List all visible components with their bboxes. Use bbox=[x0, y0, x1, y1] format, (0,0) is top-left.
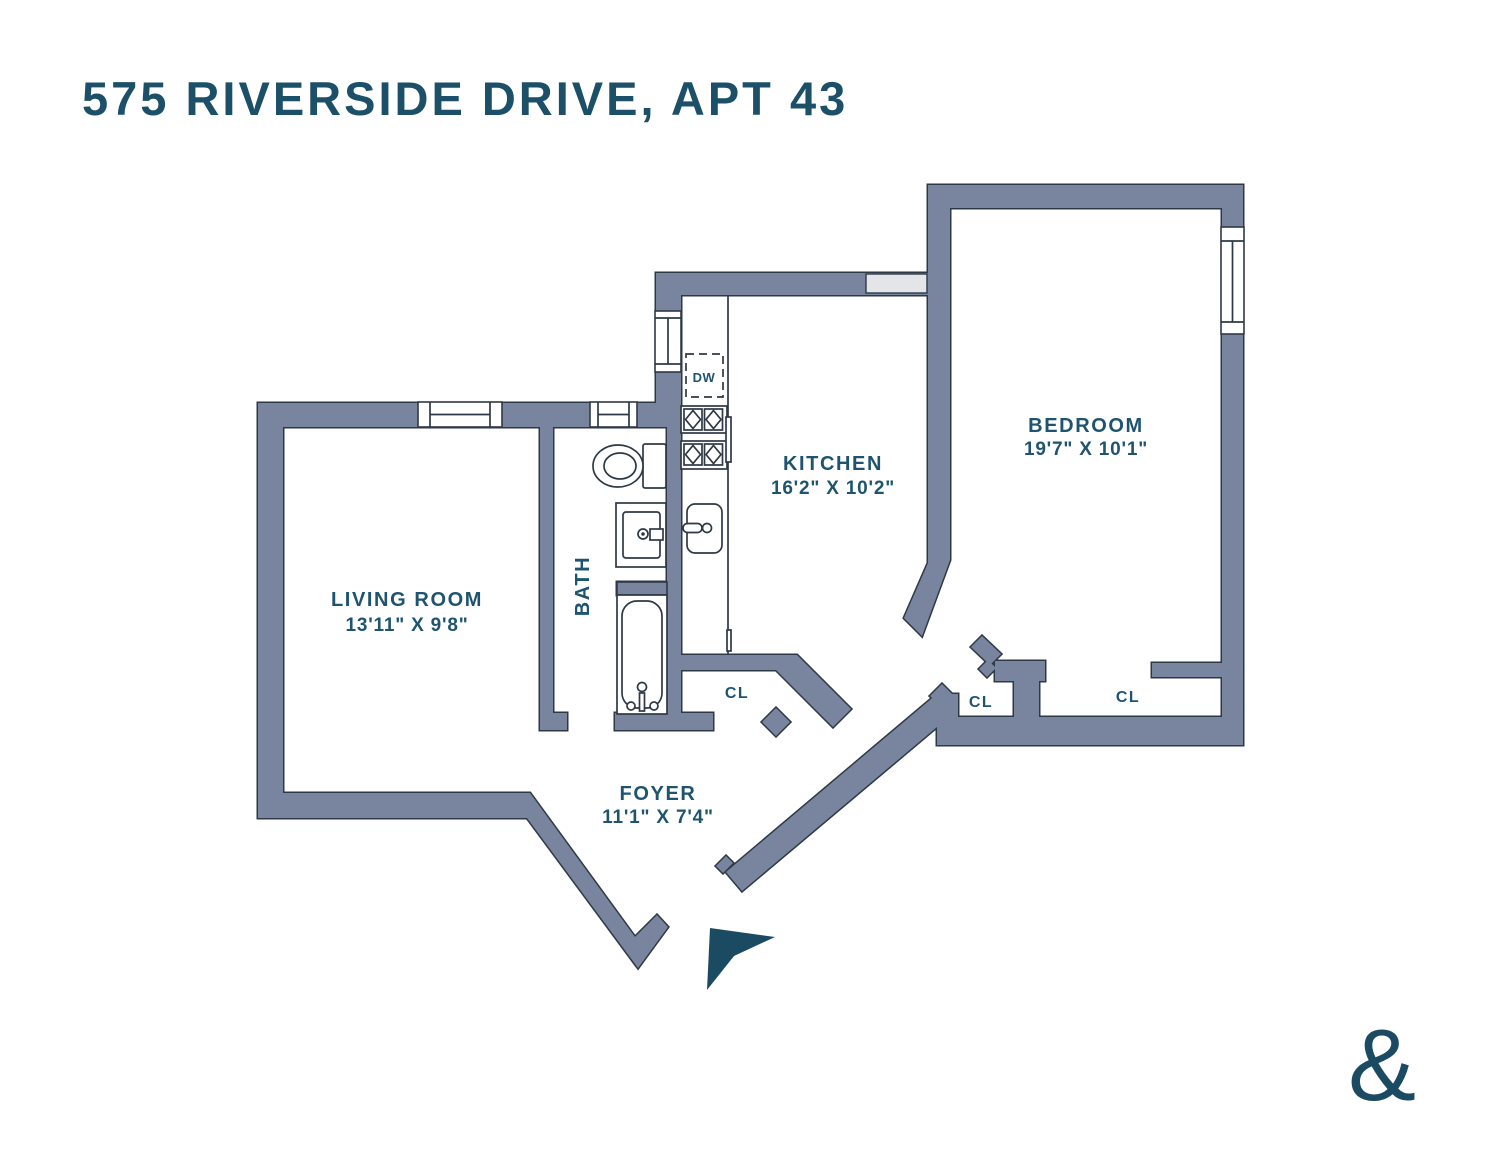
bath-sink-icon bbox=[616, 503, 666, 567]
windows bbox=[418, 227, 1244, 427]
closet-label-kitchen: CL bbox=[725, 685, 749, 702]
bedroom-dims: 19'7" X 10'1" bbox=[1024, 439, 1148, 460]
wall-outline-layer bbox=[258, 185, 1243, 968]
living-room-dims: 13'11" X 9'8" bbox=[345, 615, 468, 636]
stove-icon bbox=[681, 406, 731, 469]
wall-infill-panel bbox=[866, 274, 927, 293]
toilet-icon bbox=[593, 444, 666, 488]
kitchen-window bbox=[655, 311, 681, 372]
kitchen-sink-icon bbox=[683, 504, 722, 553]
kitchen-fixtures: DW bbox=[681, 296, 731, 654]
closet-label-bedroom-left: CL bbox=[969, 694, 993, 711]
dishwasher-label: DW bbox=[693, 370, 716, 385]
ampersand-logo-icon: & bbox=[1348, 1008, 1416, 1122]
foyer-dims: 11'1" X 7'4" bbox=[602, 807, 714, 828]
closet-label-bedroom-right: CL bbox=[1116, 689, 1140, 706]
bedroom-window bbox=[1221, 227, 1244, 334]
page-title: 575 RIVERSIDE DRIVE, APT 43 bbox=[82, 72, 848, 125]
living-room-label: LIVING ROOM bbox=[331, 589, 483, 611]
bath-half-wall bbox=[617, 582, 667, 595]
cabinet-handle bbox=[727, 630, 731, 651]
bedroom-label: BEDROOM bbox=[1028, 415, 1144, 437]
living-room-window bbox=[418, 402, 502, 427]
north-arrow-icon bbox=[707, 928, 775, 990]
foyer-label: FOYER bbox=[620, 783, 697, 805]
walls bbox=[258, 185, 1243, 968]
oven-handle bbox=[726, 417, 731, 462]
bath-label: BATH bbox=[572, 556, 594, 616]
bathtub-icon bbox=[617, 595, 667, 714]
room-labels: LIVING ROOM 13'11" X 9'8" KITCHEN 16'2" … bbox=[331, 415, 1148, 828]
kitchen-label: KITCHEN bbox=[783, 453, 883, 475]
floor-plan-page: DW LIVING ROOM 13'11" X 9'8" KITCHEN 16'… bbox=[0, 0, 1500, 1159]
kitchen-dims: 16'2" X 10'2" bbox=[771, 478, 895, 499]
dishwasher-icon: DW bbox=[686, 354, 723, 397]
bath-fixtures bbox=[593, 444, 667, 714]
bath-window bbox=[590, 402, 637, 427]
floor-plan-canvas: DW LIVING ROOM 13'11" X 9'8" KITCHEN 16'… bbox=[0, 0, 1500, 1159]
